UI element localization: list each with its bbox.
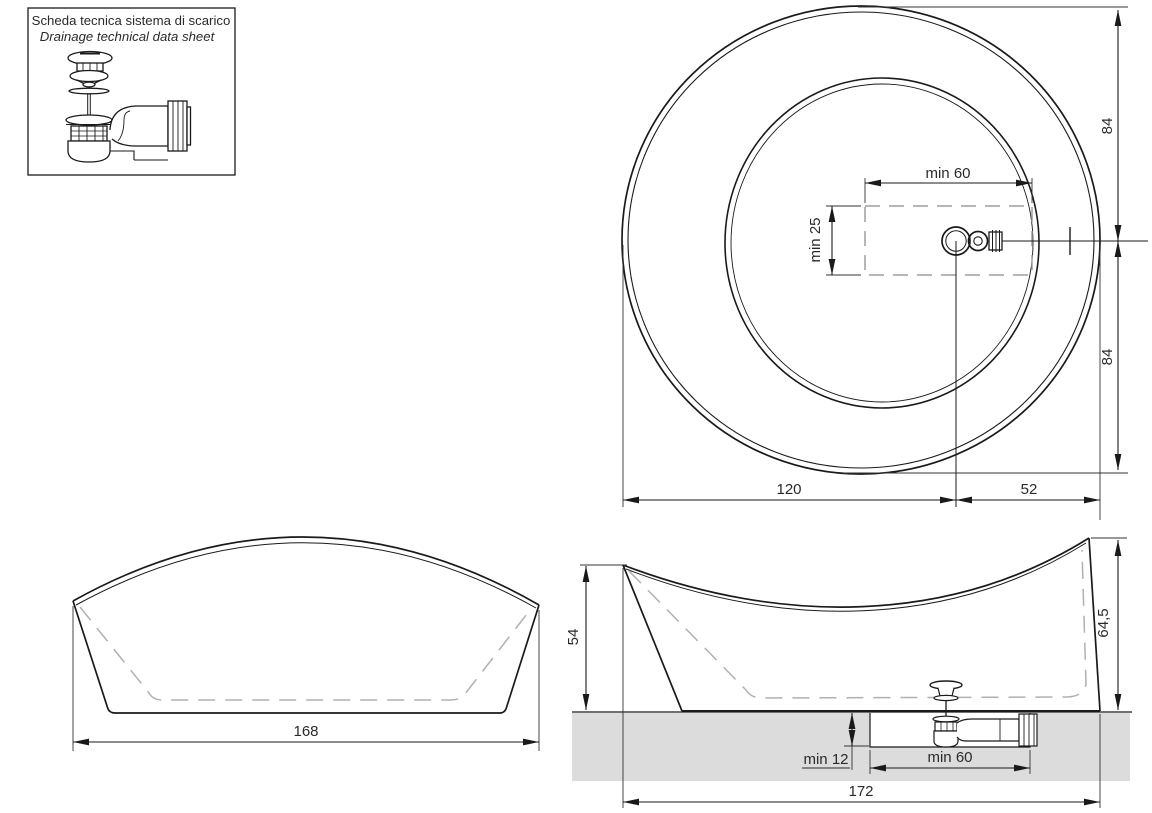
plan-view: min 60 min 25 84 84 120 52 — [622, 6, 1148, 520]
dim-label-172: 172 — [848, 783, 873, 800]
dimension-54: 54 — [565, 566, 586, 710]
dimension-168: 168 — [73, 723, 539, 742]
dimension-84-top: 84 — [1099, 10, 1118, 241]
dim-label-52: 52 — [1021, 481, 1038, 498]
dim-label-min25: min 25 — [807, 217, 824, 262]
floor-band — [572, 713, 1130, 781]
side-basin-hidden-line — [629, 550, 1086, 698]
technical-drawing-page: Scheda tecnica sistema di scarico Draina… — [0, 0, 1152, 813]
dim-label-120: 120 — [776, 481, 801, 498]
datasheet-title-english: Drainage technical data sheet — [40, 29, 216, 44]
datasheet-title-italian: Scheda tecnica sistema di scarico — [32, 13, 231, 28]
dim-label-54: 54 — [565, 629, 582, 646]
plan-basin-rim — [725, 78, 1039, 408]
front-rim-outer-curve — [73, 537, 539, 605]
dimension-drain-zone-depth: min 25 — [807, 206, 832, 275]
dimension-drain-zone-width: min 60 — [865, 165, 1032, 183]
dim-label-84-top: 84 — [1099, 118, 1116, 135]
dim-label-84-bottom: 84 — [1099, 349, 1116, 366]
dimension-120: 120 — [623, 481, 956, 500]
dim-label-recess-min60: min 60 — [927, 749, 972, 766]
front-view: 168 — [73, 537, 539, 751]
front-basin-hidden-line — [80, 607, 530, 700]
dim-label-168: 168 — [293, 723, 318, 740]
dim-label-64-5: 64,5 — [1095, 608, 1112, 637]
plan-outer-rim — [622, 6, 1100, 474]
drain-plan-icon — [942, 227, 1002, 255]
dim-label-min12: min 12 — [803, 751, 848, 768]
side-rim-outer-curve — [623, 538, 1089, 607]
front-body-outline — [73, 601, 539, 713]
dim-label-min60-plan: min 60 — [925, 165, 970, 182]
dimension-52: 52 — [956, 481, 1100, 500]
dimension-172: 172 — [623, 783, 1100, 802]
side-left-edge — [623, 565, 682, 711]
datasheet-box: Scheda tecnica sistema di scarico Draina… — [28, 8, 235, 175]
dimension-84-bottom: 84 — [1099, 241, 1118, 470]
front-rim-inner-curve — [76, 543, 536, 608]
side-rim-inner-curve — [626, 543, 1086, 611]
plan-outer-rim-inner-edge — [628, 12, 1094, 468]
side-view: 54 64,5 min 12 min 60 172 — [565, 538, 1132, 808]
drawing-svg: Scheda tecnica sistema di scarico Draina… — [0, 0, 1152, 813]
